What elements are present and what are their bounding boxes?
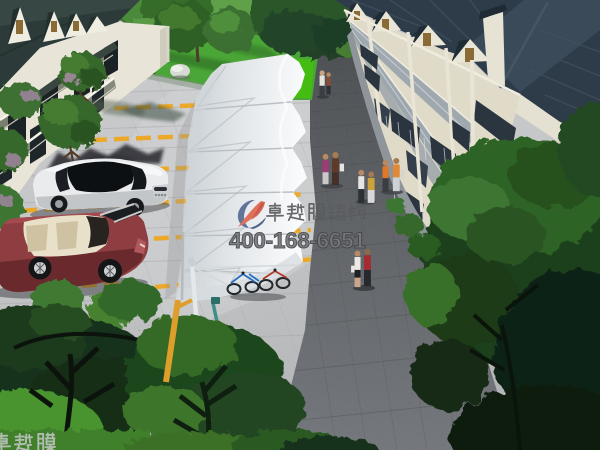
svg-text:400-168-6651: 400-168-6651 — [229, 228, 366, 253]
